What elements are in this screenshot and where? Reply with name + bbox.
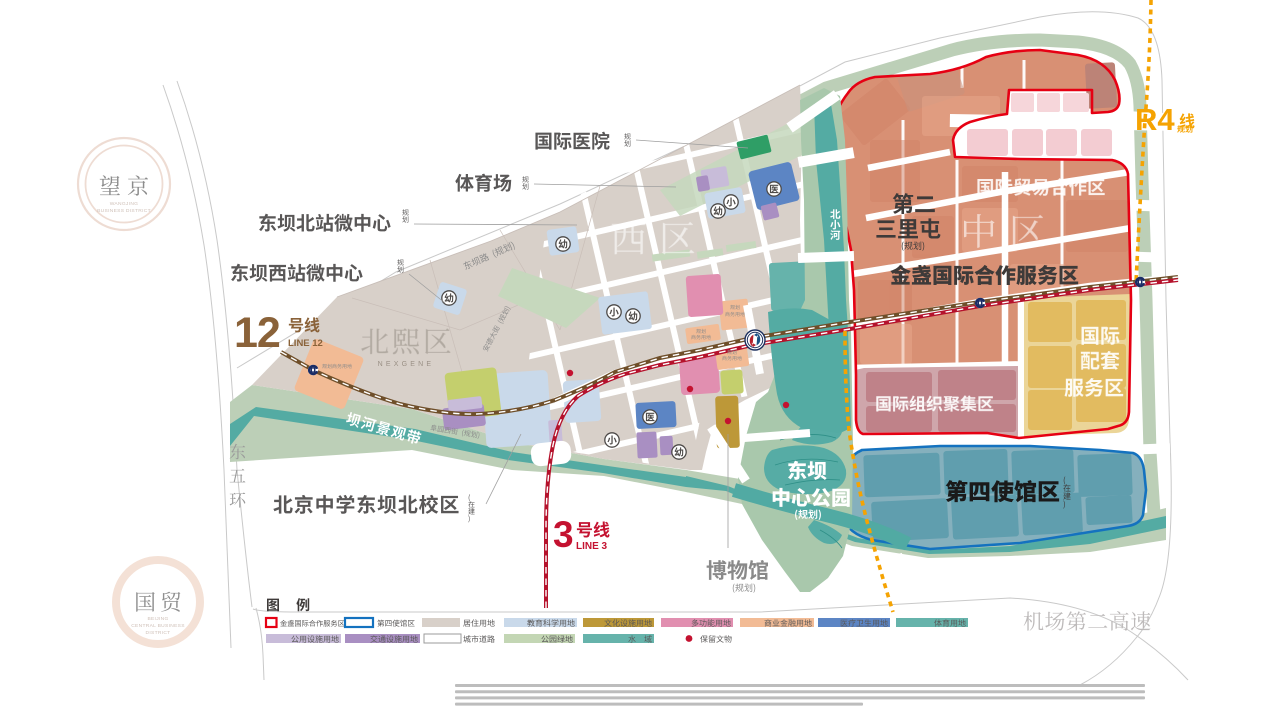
- svg-text:LINE 3: LINE 3: [576, 541, 608, 552]
- svg-text:BUSINESS DISTRICT: BUSINESS DISTRICT: [97, 208, 151, 214]
- svg-text:R4: R4: [1135, 102, 1175, 137]
- svg-text:CENTRAL BUSINESS: CENTRAL BUSINESS: [131, 623, 185, 629]
- svg-text:BEIJING: BEIJING: [147, 616, 168, 622]
- svg-text:WANGJING: WANGJING: [110, 201, 139, 207]
- svg-text:3: 3: [553, 514, 574, 555]
- svg-text:NEXGENE: NEXGENE: [378, 361, 435, 368]
- svg-text:DISTRICT: DISTRICT: [146, 630, 171, 636]
- svg-text:12: 12: [234, 309, 280, 357]
- svg-text:LINE 12: LINE 12: [288, 338, 323, 349]
